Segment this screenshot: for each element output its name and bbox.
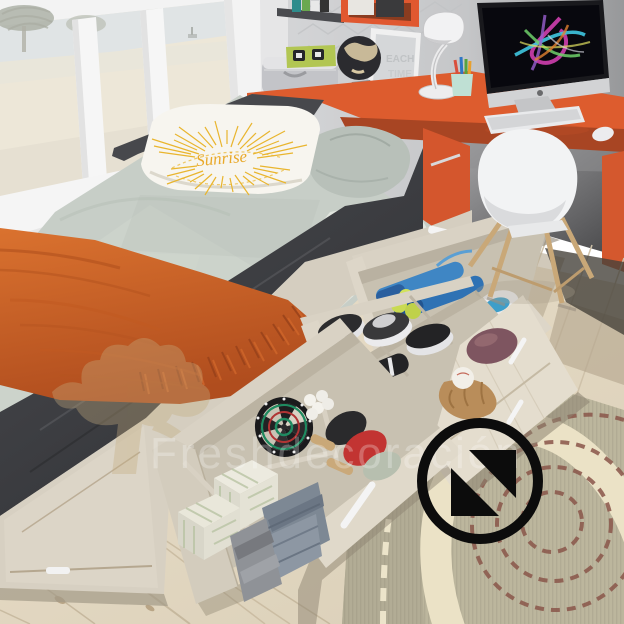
svg-text:Freshdecoración: Freshdecoración: [150, 429, 523, 478]
svg-text:EACH: EACH: [386, 54, 414, 65]
